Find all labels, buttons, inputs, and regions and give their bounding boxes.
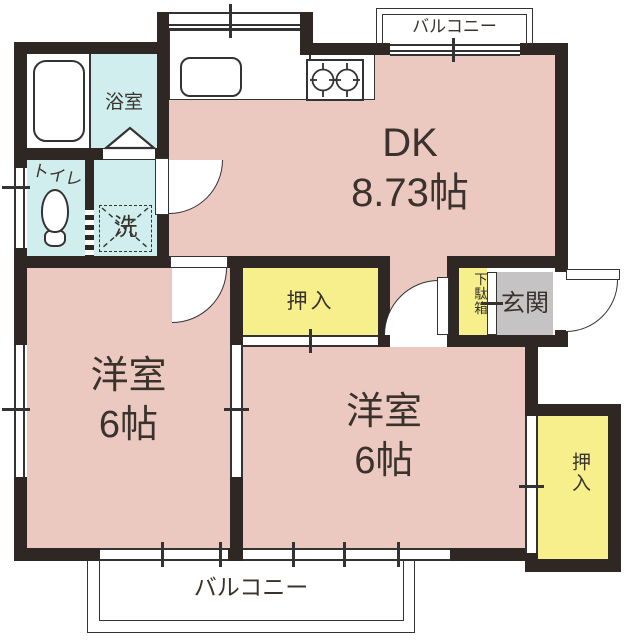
door-leaf	[155, 158, 169, 215]
balcony-south-label: バルコニー	[88, 574, 414, 602]
western-right-label: 洋室 6帖	[243, 388, 525, 487]
kitchen-window	[169, 12, 300, 30]
wall	[228, 256, 390, 268]
room-dk-label: DK 8.73帖	[320, 118, 500, 218]
wall	[608, 404, 621, 572]
western-left-side-window	[14, 345, 25, 477]
door-leaf	[437, 277, 449, 335]
front-door-leaf	[566, 269, 620, 280]
wall	[14, 477, 27, 561]
stove-icon	[306, 59, 364, 101]
western-right-size: 6帖	[243, 437, 525, 486]
entrance-label: 玄関	[497, 290, 553, 319]
wall	[230, 256, 243, 345]
shoe-cabinet-label: 下駄箱	[459, 272, 487, 316]
wall	[555, 43, 568, 272]
western-left-size: 6帖	[27, 401, 230, 450]
window-tick	[229, 4, 232, 38]
door-leaf	[170, 256, 228, 268]
wall	[14, 248, 27, 345]
wall	[14, 256, 170, 268]
floor-plan: 洗	[0, 0, 626, 640]
wall	[14, 42, 169, 54]
toilet-sliding-door	[85, 205, 94, 256]
balcony-north: バルコニー	[376, 8, 533, 45]
western-left-label: 洋室 6帖	[27, 352, 230, 451]
window-tick	[2, 186, 30, 189]
wall	[157, 214, 169, 256]
bathroom-label: 浴室	[91, 92, 157, 115]
western-left-name: 洋室	[27, 352, 230, 401]
wall	[525, 404, 621, 416]
wall	[447, 335, 568, 347]
window-tick	[2, 408, 30, 411]
closet-center-label: 押入	[243, 289, 378, 314]
wall	[525, 559, 621, 572]
door-opening	[390, 335, 447, 347]
wall	[230, 477, 243, 548]
wall	[555, 330, 568, 347]
dk-name: DK	[320, 118, 500, 168]
laundry-label: 洗	[100, 214, 151, 243]
dk-window-line	[390, 50, 520, 52]
balcony-south: バルコニー	[87, 560, 415, 633]
toilet-icon-bowl	[41, 189, 69, 233]
wall	[447, 256, 568, 268]
closet-right-label: 押入	[556, 452, 590, 494]
wall	[450, 548, 530, 561]
wall	[157, 12, 169, 160]
wall	[525, 335, 538, 416]
window-tick	[309, 329, 312, 353]
front-door-arc	[566, 280, 618, 332]
balcony-north-label: バルコニー	[412, 17, 497, 37]
sink-icon	[180, 57, 242, 97]
wall	[525, 553, 538, 559]
bathtub-icon	[33, 60, 85, 142]
wall	[14, 148, 103, 160]
dk-size: 8.73帖	[320, 168, 500, 218]
wall	[300, 12, 313, 55]
kitchen-window-line	[169, 24, 300, 26]
room-divider-sliding-door	[230, 345, 243, 477]
folding-door-icon	[104, 126, 156, 150]
western-right-name: 洋室	[243, 388, 525, 437]
toilet-window	[14, 168, 25, 248]
wall	[14, 42, 27, 168]
washing-machine-area: 洗	[99, 205, 152, 252]
